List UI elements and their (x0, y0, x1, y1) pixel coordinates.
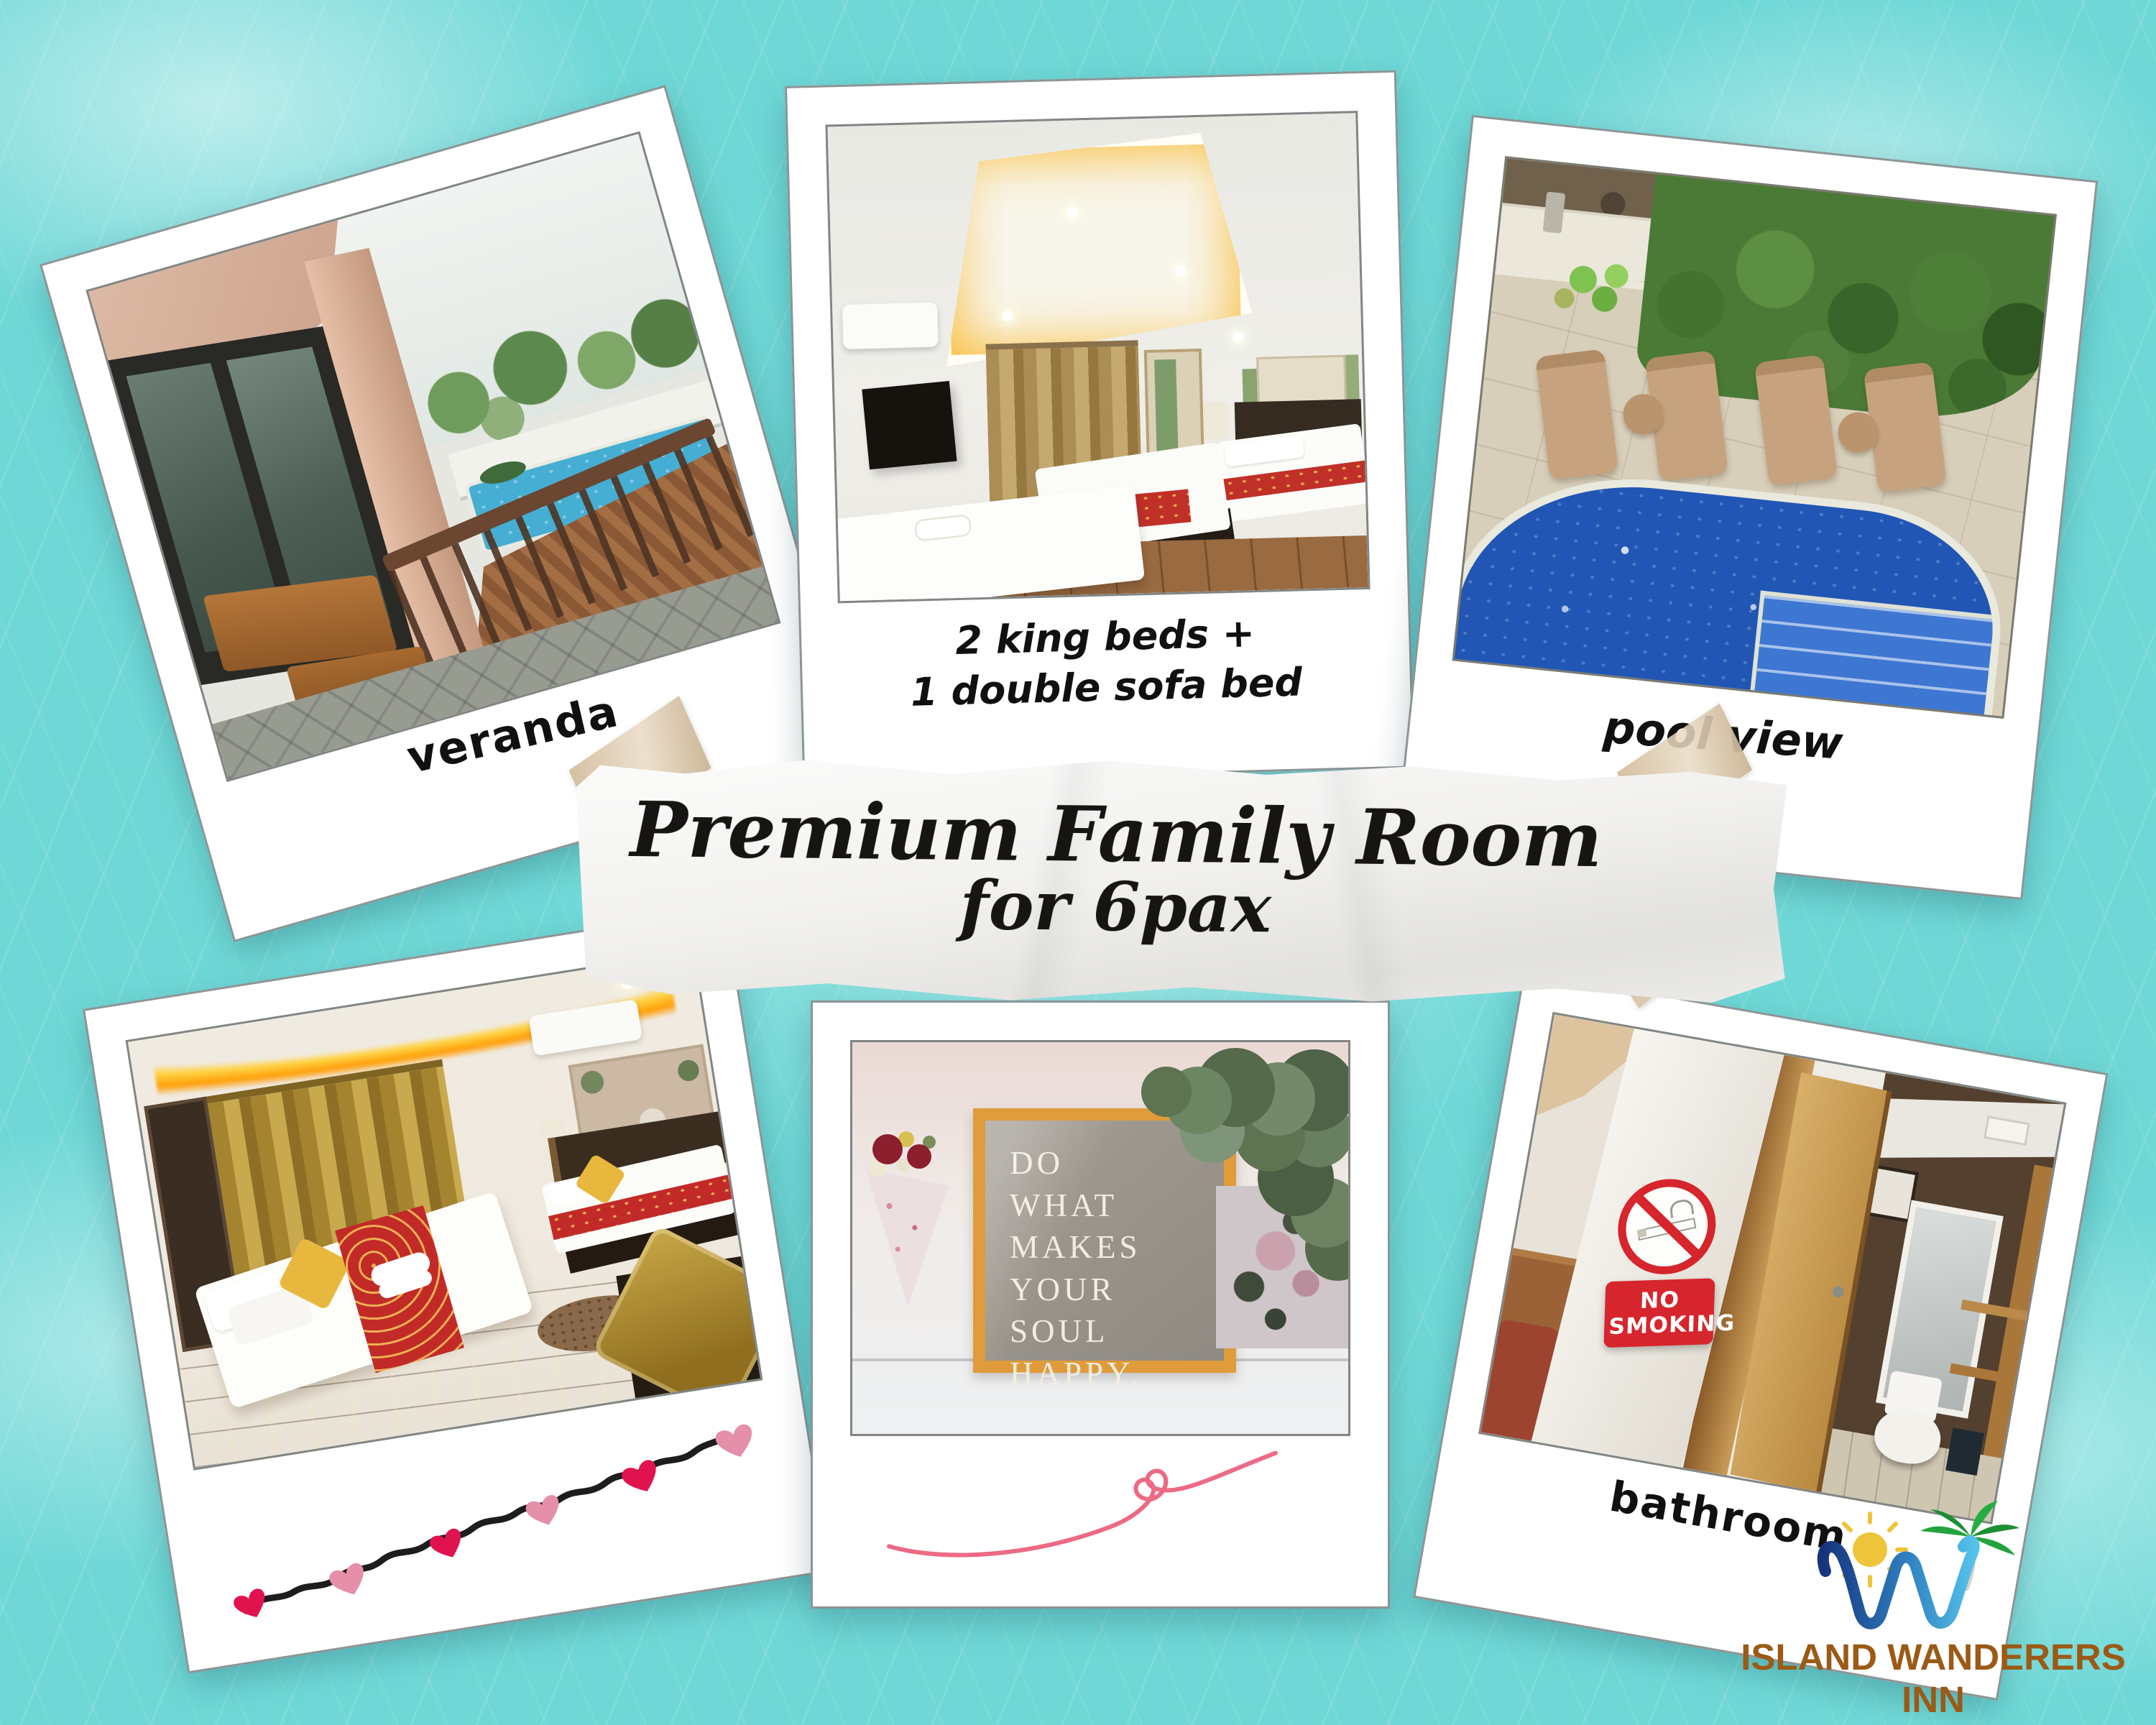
no-smoking-icon (1614, 1178, 1720, 1275)
wall-tv (862, 381, 957, 469)
title-banner: Premium Family Room for 6pax (573, 753, 1787, 1013)
heart-icon (231, 1586, 272, 1623)
door-handle (1832, 1285, 1845, 1299)
garland-line (231, 1437, 740, 1611)
banner-title-line1: Premium Family Room (618, 791, 1614, 879)
no-smoking-label: NO SMOKING (1603, 1278, 1715, 1348)
air-conditioner (842, 303, 939, 349)
bedroom-main-caption: 2 king beds + 1 double sofa bed (801, 604, 1410, 721)
pool-photo (1452, 156, 2057, 719)
bedside-lamp (1203, 401, 1228, 439)
no-smoking-sign: NO SMOKING (1602, 1178, 1726, 1347)
quote-frame: DO WHAT MAKES YOUR SOUL HAPPY. (973, 1108, 1236, 1373)
smoke-glyph (1669, 1198, 1694, 1218)
brand-logo: ISLAND WANDERERS INN CORON, PALAWAN (1718, 1494, 2149, 1718)
squiggle-line (889, 1453, 1276, 1555)
bed-runner (335, 1205, 464, 1373)
pillow (1224, 436, 1305, 467)
flower-print (1216, 1186, 1348, 1348)
heart-icon (714, 1422, 758, 1462)
polaroid-bedroom-main: 2 king beds + 1 double sofa bed (785, 70, 1414, 784)
w-monogram-icon (1823, 1541, 1974, 1624)
polaroid-wall-art: DO WHAT MAKES YOUR SOUL HAPPY. (811, 1000, 1390, 1609)
bathroom-photo: NO SMOKING (1478, 1012, 2066, 1524)
bed-runner (1222, 461, 1368, 501)
logo-name: ISLAND WANDERERS INN (1718, 1636, 2149, 1721)
quote-text: DO WHAT MAKES YOUR SOUL HAPPY. (985, 1121, 1224, 1394)
ivy-plant (1141, 1067, 1192, 1117)
wall-art-photo: DO WHAT MAKES YOUR SOUL HAPPY. (850, 1040, 1350, 1436)
towel-roll (914, 514, 972, 542)
pool-steps (1747, 591, 1999, 719)
bedroom-main-photo (825, 111, 1370, 603)
palm-plant (1551, 249, 1651, 328)
flower-bouquet (872, 1134, 903, 1164)
logo-mark (1718, 1494, 2149, 1630)
polaroid-bedroom-second (83, 907, 831, 1673)
bedroom-second-photo (125, 950, 763, 1471)
promo-poster: veranda (0, 0, 2156, 1725)
heart-squiggle (870, 1445, 1330, 1581)
